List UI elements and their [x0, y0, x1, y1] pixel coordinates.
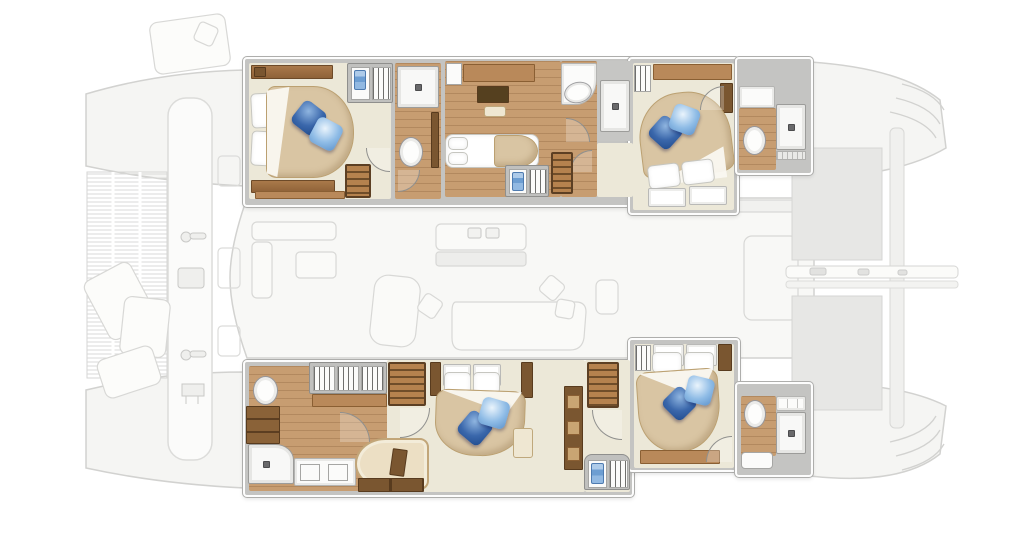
- towel: [591, 463, 604, 484]
- stool: [484, 106, 506, 117]
- towel: [354, 70, 366, 90]
- desk-shelf: [463, 64, 535, 82]
- shower: [600, 80, 630, 132]
- tv-panel: [477, 86, 509, 103]
- wardrobe-cell: [361, 366, 384, 391]
- wardrobe-cell: [337, 366, 359, 391]
- towel: [512, 172, 524, 191]
- toilet: [744, 400, 766, 428]
- bath-counter: [776, 396, 806, 411]
- bed-pillow: [647, 162, 682, 190]
- nightstand-item: [254, 67, 266, 77]
- bed-pillow: [681, 158, 716, 186]
- chaise-lounge: [368, 274, 421, 348]
- sofa-stowage-base: [358, 478, 424, 492]
- twin-sink-counter: [294, 458, 356, 486]
- hanging-locker: [635, 345, 651, 371]
- shelf-niche: [567, 421, 580, 435]
- port-bow-ghost: [86, 70, 245, 186]
- shower: [776, 104, 806, 150]
- bed-post: [521, 362, 533, 398]
- cabin-entry-steps: [345, 164, 371, 198]
- bath-counter: [739, 86, 775, 108]
- shower: [776, 412, 806, 454]
- bed-pillow: [448, 137, 468, 150]
- hanging-locker-cell: [609, 460, 628, 488]
- bed-bench: [513, 428, 533, 458]
- toilet: [743, 126, 766, 155]
- shower: [248, 444, 294, 484]
- hanging-locker: [634, 65, 651, 92]
- drawer-chest: [246, 406, 280, 444]
- stbd-companionway-steps: [587, 362, 619, 408]
- washbasin: [300, 464, 320, 481]
- hanging-locker-cell: [372, 67, 391, 100]
- bed-post: [718, 344, 732, 371]
- owner-companionway-steps: [388, 362, 426, 406]
- shelf-niche: [567, 395, 580, 409]
- towel-cabinet: [505, 165, 549, 197]
- shower-bench: [776, 151, 806, 160]
- toilet: [253, 376, 278, 405]
- vanity: [431, 112, 439, 168]
- corridor-floor: [597, 143, 633, 197]
- sun-pad-coachroof: [149, 13, 231, 75]
- bed-pillow: [448, 152, 468, 165]
- catamaran-floor-plan: [0, 0, 1024, 555]
- berth-duvet: [494, 135, 538, 167]
- shelving-unit: [564, 386, 583, 470]
- anchor-roller: [178, 268, 204, 288]
- bath-bench: [741, 452, 773, 469]
- shelf-niche: [567, 447, 580, 461]
- port-companionway-steps: [551, 152, 573, 194]
- dressing-counter: [312, 394, 387, 407]
- hanging-locker-cell: [529, 169, 547, 194]
- shower: [397, 66, 439, 108]
- headboard-shelf: [653, 64, 732, 80]
- towel-locker: [347, 63, 393, 103]
- foot-shelf: [255, 191, 345, 199]
- cleat-port: [181, 232, 191, 242]
- washbasin: [328, 464, 348, 481]
- wardrobe-cell: [313, 366, 335, 391]
- cleat-starboard: [181, 350, 191, 360]
- wardrobe: [309, 362, 387, 394]
- saloon-sofa: [252, 222, 336, 240]
- hull-window: [648, 188, 686, 207]
- helm-seat: [596, 280, 618, 314]
- locker: [446, 63, 462, 85]
- toilet: [399, 137, 423, 167]
- hull-window: [689, 186, 727, 205]
- landing-lockers: [584, 454, 630, 490]
